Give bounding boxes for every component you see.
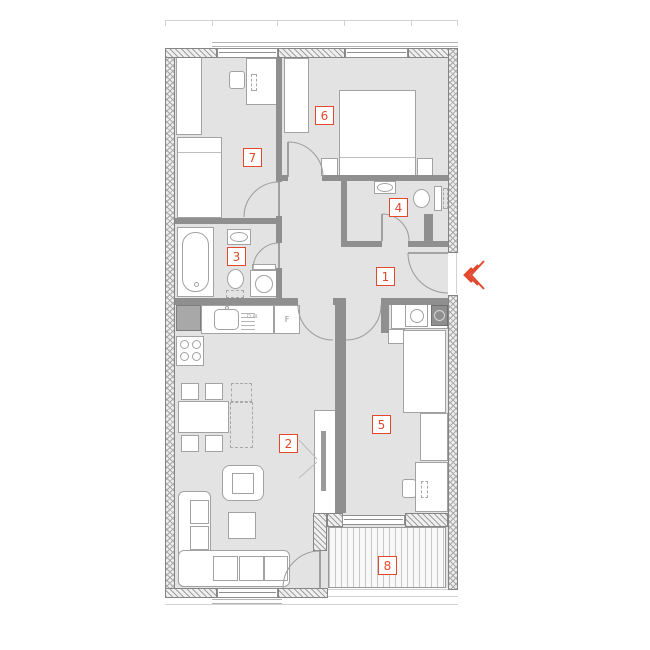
entrance-threshold [456, 253, 457, 294]
room6-nightstand-right [417, 158, 433, 176]
dining-chair [181, 383, 199, 400]
window-sill-bottom [212, 599, 282, 604]
canopy-tick [344, 20, 345, 26]
bathroom-toilet-bowl [227, 269, 244, 289]
wall-interior [341, 241, 382, 247]
wc-toilet-bowl [413, 189, 430, 208]
balcony-wall-front [327, 513, 343, 527]
window-sill-top [212, 42, 458, 47]
canopy-tick [212, 20, 213, 26]
wall-exterior-bottom [278, 588, 328, 598]
room7-wardrobe [176, 57, 202, 135]
room-label-5: 5 [372, 415, 391, 434]
dining-table [178, 401, 229, 433]
room5-chair-dashed [421, 481, 428, 498]
room-label-2: 2 [279, 434, 298, 453]
washing-machine-drum [255, 275, 273, 293]
balcony-wall-left [313, 513, 327, 551]
room6-wardrobe [284, 58, 309, 133]
wall-exterior-right [448, 295, 458, 590]
kitchen-sink-basin [214, 309, 239, 330]
balcony-railing-line [327, 596, 458, 597]
room5-wardrobe [420, 413, 448, 461]
sofa-cushion [190, 526, 209, 550]
armchair-cushion [232, 473, 254, 494]
window-room7 [217, 48, 278, 58]
wall-exterior-top [165, 48, 217, 58]
kitchen-shaft [176, 305, 201, 331]
stove-burner [192, 340, 201, 349]
room5-bed [403, 330, 446, 413]
dining-chair [181, 435, 199, 452]
wall-interior [408, 241, 448, 247]
canopy-tick [277, 20, 278, 26]
bathroom-sink-basin [230, 232, 248, 242]
dining-chair-dashed [231, 383, 252, 402]
room-label-7: 7 [243, 148, 262, 167]
wall-interior [381, 298, 448, 305]
wall-interior [276, 58, 282, 182]
room5-desk [415, 462, 448, 512]
wall-exterior-right [448, 48, 458, 253]
fridge-label: F [285, 315, 290, 324]
stove-burner [180, 352, 189, 361]
wall-interior [335, 305, 346, 513]
wall-interior [381, 305, 389, 333]
room-label-6: 6 [315, 106, 334, 125]
bathtub-drain [194, 282, 199, 287]
balcony-railing-line [327, 589, 458, 590]
stove-burner [192, 352, 201, 361]
wall-interior [175, 298, 298, 305]
entrance-arrow-icon [465, 268, 472, 282]
room7-chair-dashed [251, 74, 257, 91]
wall-exterior-top [278, 48, 345, 58]
room5-washer-drum [410, 309, 424, 323]
wall-interior [175, 218, 276, 224]
dining-table-extension [230, 402, 253, 448]
canopy-tick [411, 20, 412, 26]
room7-bed-seam [178, 152, 221, 153]
wall-exterior-bottom [165, 588, 217, 598]
bathroom-toilet-tank [226, 290, 244, 298]
entrance-arrow-icon [471, 261, 484, 289]
wc-sink-basin [377, 183, 393, 192]
canopy-line-top [165, 20, 458, 21]
room-label-4: 4 [389, 198, 408, 217]
wc-toilet-tank [434, 186, 442, 211]
wall-interior [341, 181, 347, 241]
fridge: F [274, 305, 300, 334]
dining-chair [205, 435, 223, 452]
window-room5-balcony [342, 515, 405, 525]
room-label-1: 1 [376, 267, 395, 286]
room7-chair [229, 71, 245, 89]
ground-line-bottom [165, 604, 458, 605]
dishwasher-label: D.W. [247, 315, 258, 320]
room-label-3: 3 [227, 247, 246, 266]
sofa-cushion [213, 556, 238, 581]
wall-interior [276, 216, 282, 243]
sofa-cushion [190, 500, 209, 524]
wall-interior [333, 298, 346, 305]
coffee-table [228, 512, 256, 539]
room7-bed [177, 137, 222, 218]
balcony-wall-front [405, 513, 448, 527]
stove-burner [180, 340, 189, 349]
room-label-8: 8 [378, 556, 397, 575]
floor-plan: D.W. F [0, 0, 650, 650]
tv [321, 431, 326, 491]
window-room6 [345, 48, 408, 58]
canopy-tick [457, 20, 458, 26]
entrance-arrow-icon [468, 265, 478, 285]
wall-pier-entrance [424, 214, 433, 241]
room6-bed-seam [340, 157, 415, 158]
canopy-tick [165, 20, 166, 26]
dining-chair [205, 383, 223, 400]
sofa-cushion [239, 556, 264, 581]
room6-double-bed [339, 90, 416, 176]
kitchen-faucet [225, 306, 229, 310]
wall-exterior-left [165, 48, 175, 598]
wall-interior [282, 175, 288, 181]
sofa-cushion [264, 556, 288, 581]
wall-interior [276, 268, 282, 299]
room6-nightstand-left [321, 158, 338, 176]
room5-boiler-ring [434, 310, 445, 321]
room5-chair [402, 479, 416, 498]
window-living-room [217, 588, 278, 598]
